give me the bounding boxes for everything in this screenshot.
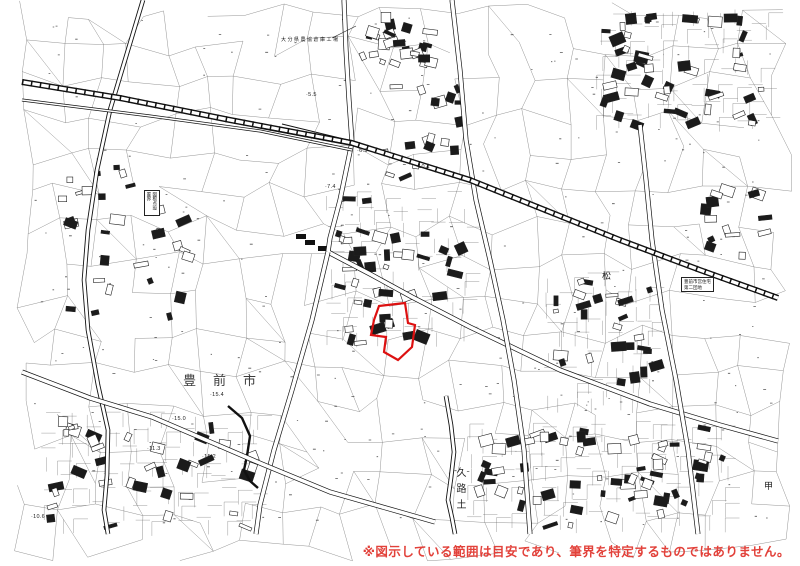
map-canvas [0,0,800,566]
spot-elevation: ·11.3 [147,446,161,452]
district-name-label: 久路土 [452,467,467,515]
facility-annotation-label: 大分県農協倉庫工場 [281,36,340,43]
annotation-box-right-line2: 第二団地 [684,285,711,291]
spot-elevation: ·10.1 [416,164,430,170]
spot-elevation: ·6.3 [357,148,368,154]
spot-elevation: ·5.5 [306,92,317,98]
spot-elevation: ·10.6 [31,514,45,520]
disclaimer-text: ※図示している範囲は目安であり、筆界を特定するものではありません。 [363,541,790,560]
city-name-label: 豊前市 [183,370,273,389]
place-label-matsu: 松 [602,269,611,282]
cadastral-map-page: 豊前市 久路土 松 甲 大分県農協倉庫工場 豊前市営住宅 第二団地 図根点設置界… [0,0,800,566]
building-footprints [46,12,772,531]
place-label-kou: 甲 [764,479,773,492]
parcel-mesh [15,1,792,561]
spot-elevation: ·7.4 [325,184,336,190]
spot-elevation: ·15.0 [172,416,186,422]
annotation-box-right: 豊前市営住宅 第二団地 [681,277,714,292]
annotation-box-left: 図根点設置界 [144,190,160,216]
spot-elevation: ·15.4 [210,392,224,398]
annotation-box-right-line1: 豊前市営住宅 [684,279,711,285]
spot-elevation: ·15.2 [202,454,216,460]
